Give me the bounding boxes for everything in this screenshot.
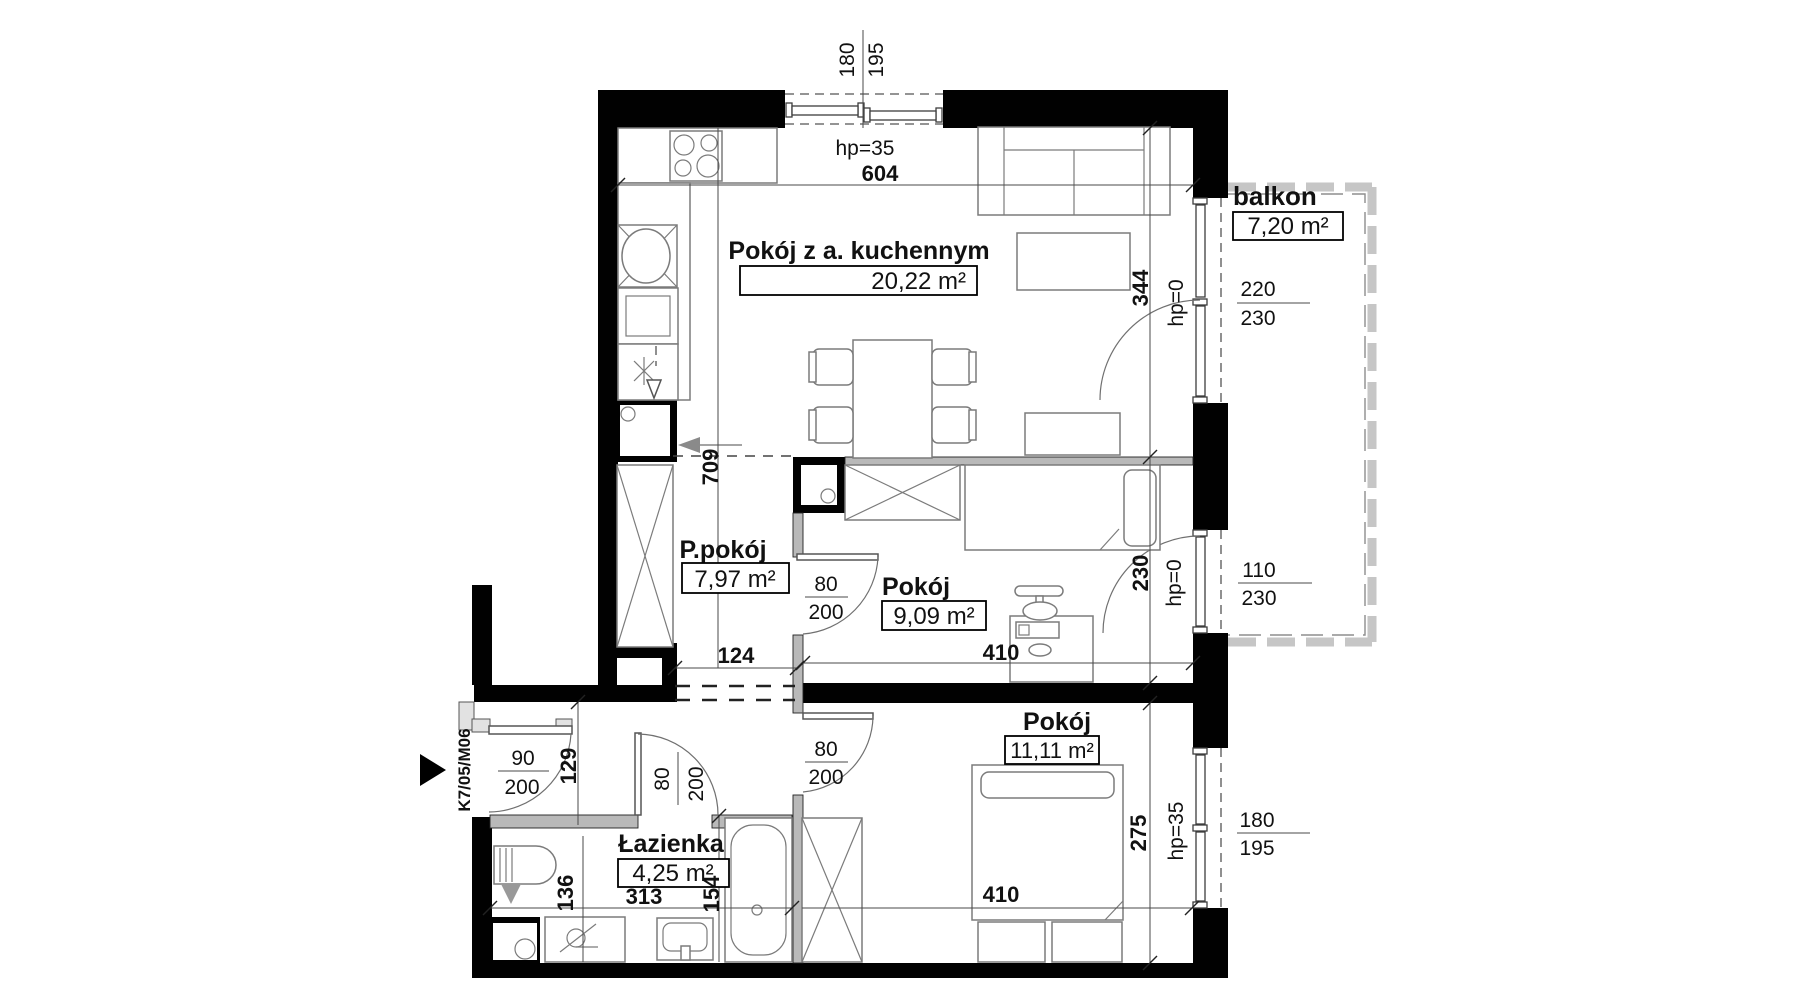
dim-bathdoor-w: 80 bbox=[651, 767, 674, 790]
shaft-kitchen bbox=[613, 398, 677, 462]
sideboard bbox=[1025, 413, 1120, 455]
floor-plan-svg: Pokój z a. kuchennym 20,22 m² balkon 7,2… bbox=[0, 0, 1800, 1008]
dim-balcony-door-hp: hp=0 bbox=[1165, 279, 1188, 326]
dim-bath-right: 154 bbox=[699, 875, 724, 912]
dim-hall-depth: 709 bbox=[698, 449, 723, 486]
dim-door9-h: 200 bbox=[808, 601, 843, 624]
dim-room9-side: 230 bbox=[1128, 555, 1153, 592]
bed-room9 bbox=[965, 465, 1160, 550]
dim-bath-width: 313 bbox=[626, 884, 663, 909]
dim-entrance-w: 90 bbox=[511, 747, 534, 770]
cabinet-room9 bbox=[845, 465, 960, 520]
room-label-balcony: balkon bbox=[1233, 181, 1317, 211]
area-room9: 9,09 m² bbox=[893, 603, 974, 630]
bathroom-radiator bbox=[494, 846, 556, 904]
unit-id: K7/05/M06 bbox=[455, 728, 474, 811]
area-room11: 11,11 m² bbox=[1010, 738, 1094, 763]
dim-room9-door-w: 110 bbox=[1242, 559, 1275, 582]
room-label-room11: Pokój bbox=[1023, 708, 1091, 736]
bathroom-sink bbox=[657, 918, 713, 960]
dim-balcony-door-h: 230 bbox=[1240, 307, 1275, 330]
shaft-middle bbox=[793, 457, 845, 513]
down-arrow-icon bbox=[501, 884, 521, 904]
dim-top-window-h: 195 bbox=[865, 42, 888, 77]
dim-room9-width: 410 bbox=[983, 640, 1020, 665]
dim-top-window-w: 180 bbox=[836, 42, 859, 77]
dining-table bbox=[809, 340, 976, 458]
entrance-arrow-icon bbox=[420, 754, 446, 786]
section-arrow-icon bbox=[678, 437, 700, 453]
room-label-hall: P.pokój bbox=[679, 536, 766, 564]
dim-opening-w: 124 bbox=[718, 643, 755, 668]
room-label-living: Pokój z a. kuchennym bbox=[728, 237, 989, 265]
dim-room11-window-hp: hp=35 bbox=[1165, 802, 1188, 861]
kitchen-oven bbox=[618, 288, 678, 344]
dim-room11-width: 410 bbox=[983, 882, 1020, 907]
area-balcony: 7,20 m² bbox=[1247, 213, 1328, 240]
coffee-table bbox=[1017, 233, 1130, 290]
dim-bathdoor-h: 200 bbox=[685, 766, 708, 801]
window-room11 bbox=[1193, 748, 1228, 908]
wardrobe-room11 bbox=[802, 818, 862, 962]
dim-door9-w: 80 bbox=[814, 573, 837, 596]
area-living: 20,22 m² bbox=[871, 268, 966, 295]
kitchen-stove bbox=[670, 131, 722, 181]
washing-machine bbox=[545, 917, 625, 962]
dim-room11-side: 275 bbox=[1126, 815, 1151, 852]
bathtub bbox=[725, 818, 792, 962]
balcony-door-2 bbox=[1193, 530, 1228, 633]
desk-room9 bbox=[1010, 586, 1093, 682]
dim-bath-left: 136 bbox=[553, 875, 578, 912]
kitchen-sink bbox=[618, 225, 677, 287]
area-hall: 7,97 m² bbox=[694, 566, 775, 593]
bed-room11 bbox=[972, 765, 1123, 962]
dim-entrance-h: 200 bbox=[504, 776, 539, 799]
dim-living-side: 344 bbox=[1128, 269, 1153, 306]
dim-door11-w: 80 bbox=[814, 738, 837, 761]
window-top bbox=[785, 90, 943, 128]
dim-niche: 129 bbox=[556, 748, 581, 785]
dim-room9-door-h: 230 bbox=[1241, 587, 1276, 610]
dim-room11-window-w: 180 bbox=[1239, 809, 1274, 832]
dim-door11-h: 200 bbox=[808, 766, 843, 789]
floor-plan-page: Pokój z a. kuchennym 20,22 m² balkon 7,2… bbox=[0, 0, 1800, 1008]
dim-room9-door-hp: hp=0 bbox=[1163, 559, 1186, 606]
dim-living-width: 604 bbox=[862, 161, 899, 186]
room-label-room9: Pokój bbox=[882, 573, 950, 601]
sofa bbox=[978, 127, 1170, 215]
shaft-bathroom bbox=[473, 917, 540, 963]
wardrobe-hall bbox=[617, 465, 673, 647]
dim-balcony-door-w: 220 bbox=[1240, 278, 1275, 301]
dim-top-window-hp: hp=35 bbox=[836, 137, 895, 160]
dim-room11-window-h: 195 bbox=[1239, 837, 1274, 860]
room-label-bath: Łazienka bbox=[618, 830, 725, 858]
kitchen-heater-symbol bbox=[618, 344, 678, 400]
